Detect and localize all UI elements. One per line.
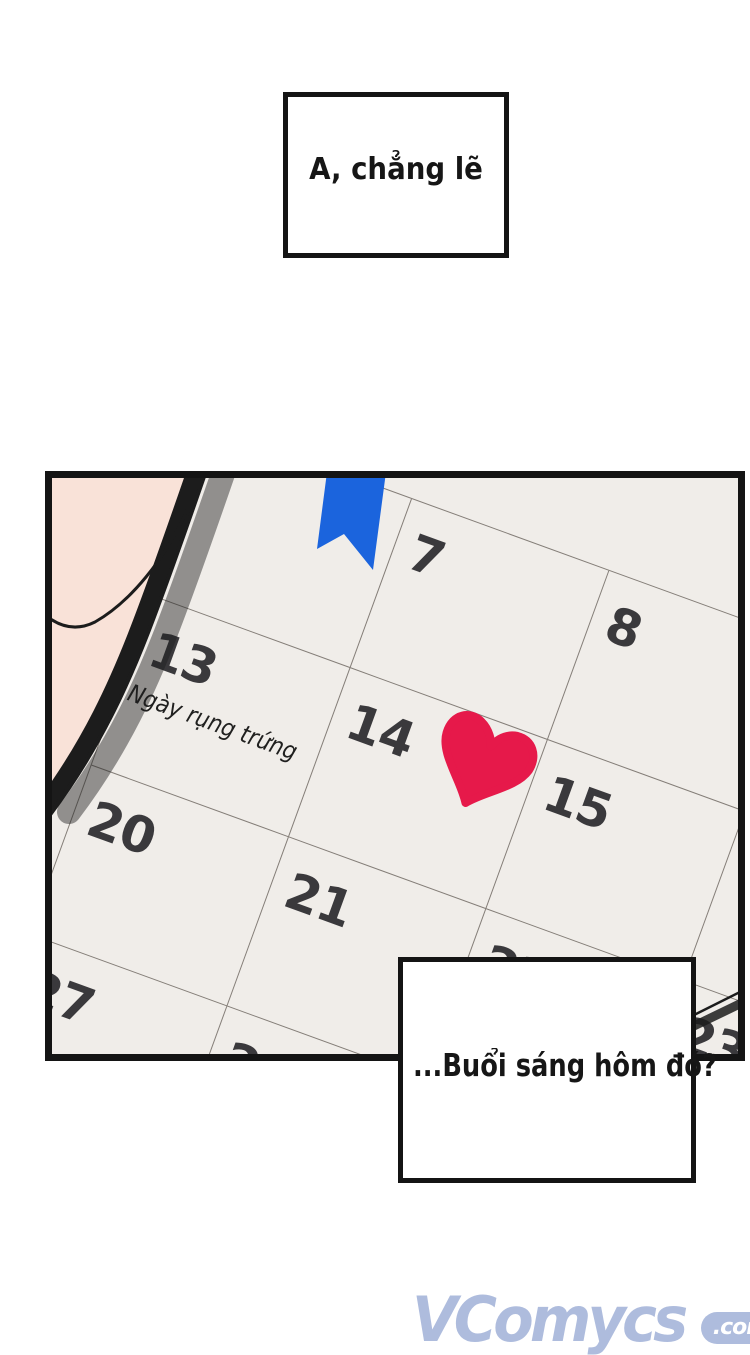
comic-page: A, chẳng lẽ 7 8 13 Ngày rụng trứng 14 15 xyxy=(0,0,750,1355)
watermark-logo-text: VComycs xyxy=(412,1291,684,1350)
caption-text-top: A, chẳng lẽ xyxy=(297,152,496,187)
bookmark-ribbon-icon xyxy=(317,478,386,570)
watermark: VComycs .com xyxy=(412,1258,750,1350)
caption-text-bottom: ...Buổi sáng hôm đó? xyxy=(413,1048,717,1084)
watermark-com-badge: .com xyxy=(701,1312,750,1344)
caption-box-bottom: ...Buổi sáng hôm đó? xyxy=(398,957,696,1183)
caption-box-top: A, chẳng lẽ xyxy=(283,92,509,258)
heart-mark-icon xyxy=(423,709,540,822)
